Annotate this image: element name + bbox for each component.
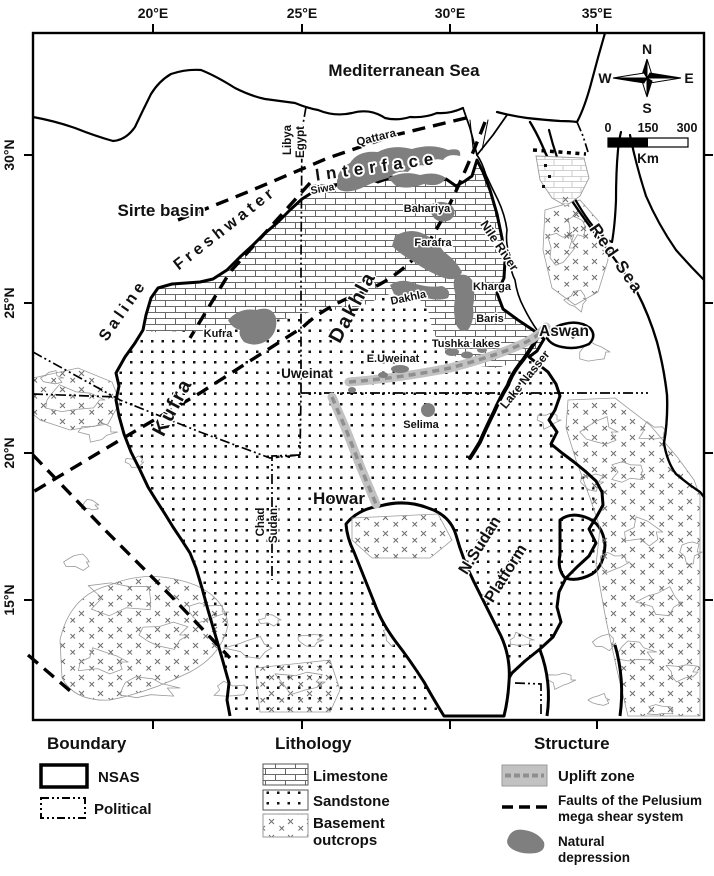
scale-unit: Km xyxy=(637,151,659,166)
legend: Boundary NSAS Political Lithology Limest… xyxy=(41,734,702,865)
legend-boundary-title: Boundary xyxy=(47,734,127,753)
label-baris: Baris xyxy=(476,313,504,325)
legend-lithology-title: Lithology xyxy=(275,734,352,753)
label-farafra: Farafra xyxy=(414,237,452,249)
label-e-uweinat: E.Uweinat xyxy=(367,353,420,365)
legend-basement-swatch xyxy=(263,814,308,837)
tick-20e: 20°E xyxy=(138,5,169,21)
scale-0: 0 xyxy=(605,121,612,135)
legend-faults-label-1: Faults of the Pelusium xyxy=(558,793,702,808)
label-bahariya: Bahariya xyxy=(404,203,451,215)
tick-25n: 25°N xyxy=(1,287,17,318)
label-mediterranean: Mediterranean Sea xyxy=(328,61,480,80)
legend-depression-label-2: depression xyxy=(558,850,630,865)
compass-s: S xyxy=(642,100,651,116)
legend-faults-label-2: mega shear system xyxy=(558,809,683,824)
label-sudan: Sudan. xyxy=(268,505,280,543)
legend-nsas-label: NSAS xyxy=(98,769,140,786)
compass-w: W xyxy=(598,70,612,86)
legend-nsas-swatch xyxy=(41,765,87,787)
scale-300: 300 xyxy=(677,121,698,135)
label-kufra-oasis: Kufra xyxy=(204,328,234,340)
tick-25e: 25°E xyxy=(287,5,318,21)
label-sirte-basin: Sirte basin xyxy=(118,201,205,220)
label-howar: Howar xyxy=(313,489,365,508)
scale-150: 150 xyxy=(638,121,659,135)
legend-limestone-swatch xyxy=(263,764,308,785)
legend-political-label: Political xyxy=(94,801,152,818)
legend-basement-label-1: Basement xyxy=(313,815,385,832)
map-canvas: Mediterranean Sea Sirte basin Red Sea Sa… xyxy=(28,33,704,720)
tick-30e: 30°E xyxy=(435,5,466,21)
label-aswan: Aswan xyxy=(539,323,589,340)
nsas-map-svg: Mediterranean Sea Sirte basin Red Sea Sa… xyxy=(0,0,714,876)
tick-15n: 15°N xyxy=(1,584,17,615)
legend-depression-label-1: Natural xyxy=(558,834,605,849)
label-uweinat: Uweinat xyxy=(281,366,333,381)
label-selima: Selima xyxy=(403,419,439,431)
label-chad: Chad xyxy=(255,508,267,537)
legend-sandstone-label: Sandstone xyxy=(313,793,390,810)
legend-uplift-label: Uplift zone xyxy=(558,768,635,785)
label-egypt: Egypt xyxy=(295,126,307,158)
label-libya: Libya xyxy=(282,124,294,155)
label-tushka: Tushka lakes xyxy=(432,338,500,350)
legend-limestone-label: Limestone xyxy=(313,768,388,785)
legend-sandstone-swatch xyxy=(263,790,308,810)
compass-n: N xyxy=(642,41,652,57)
tick-20n: 20°N xyxy=(1,437,17,468)
geologic-map-figure: Mediterranean Sea Sirte basin Red Sea Sa… xyxy=(0,0,714,876)
tick-30n: 30°N xyxy=(1,139,17,170)
legend-basement-label-2: outcrops xyxy=(313,832,377,849)
legend-depression-swatch xyxy=(507,830,544,854)
compass-e: E xyxy=(684,70,693,86)
selima-depression xyxy=(421,403,435,417)
kharga-depression xyxy=(454,275,475,332)
legend-structure-title: Structure xyxy=(534,734,610,753)
legend-political-swatch xyxy=(41,798,85,818)
label-kharga: Kharga xyxy=(473,281,512,293)
tick-35e: 35°E xyxy=(582,5,613,21)
